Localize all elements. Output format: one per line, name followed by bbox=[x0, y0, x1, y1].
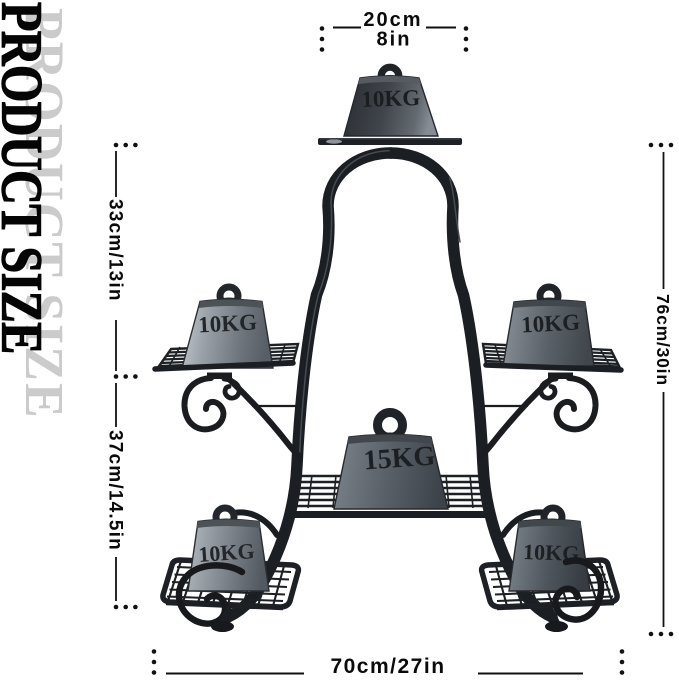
svg-text:10KG: 10KG bbox=[198, 309, 258, 337]
svg-text:76cm/30in: 76cm/30in bbox=[653, 294, 673, 386]
svg-text:10KG: 10KG bbox=[521, 309, 581, 337]
svg-text:15KG: 15KG bbox=[363, 441, 437, 477]
svg-text:PRODUCT SIZE: PRODUCT SIZE bbox=[0, 2, 55, 354]
svg-text:70cm/27in: 70cm/27in bbox=[330, 655, 445, 678]
svg-text:10KG: 10KG bbox=[361, 85, 421, 112]
svg-text:33cm/13in: 33cm/13in bbox=[105, 199, 126, 302]
svg-text:10KG: 10KG bbox=[198, 538, 256, 567]
svg-text:37cm/14.5in: 37cm/14.5in bbox=[105, 430, 126, 551]
svg-text:8in: 8in bbox=[377, 29, 412, 51]
